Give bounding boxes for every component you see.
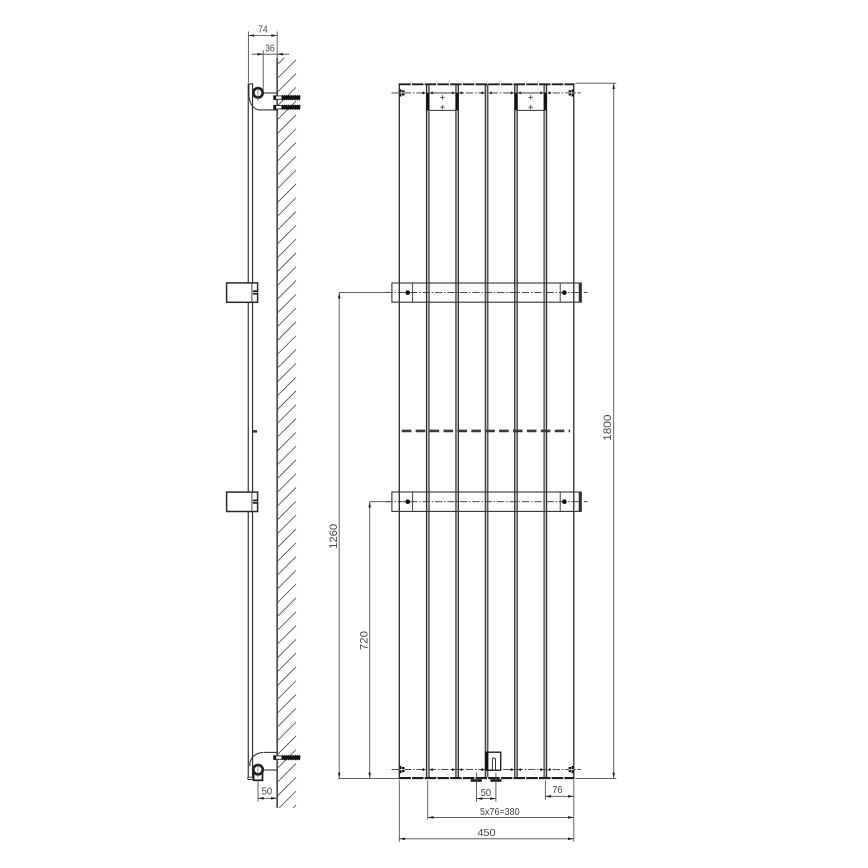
svg-text:36: 36 [265,44,275,55]
svg-text:450: 450 [478,828,496,839]
svg-text:1260: 1260 [328,524,340,549]
svg-text:1800: 1800 [602,415,614,441]
svg-text:50: 50 [262,787,273,798]
svg-text:76: 76 [552,785,562,796]
svg-text:74: 74 [258,25,268,36]
svg-text:720: 720 [358,631,370,650]
svg-text:5x76=380: 5x76=380 [480,807,520,818]
svg-text:50: 50 [481,788,492,799]
